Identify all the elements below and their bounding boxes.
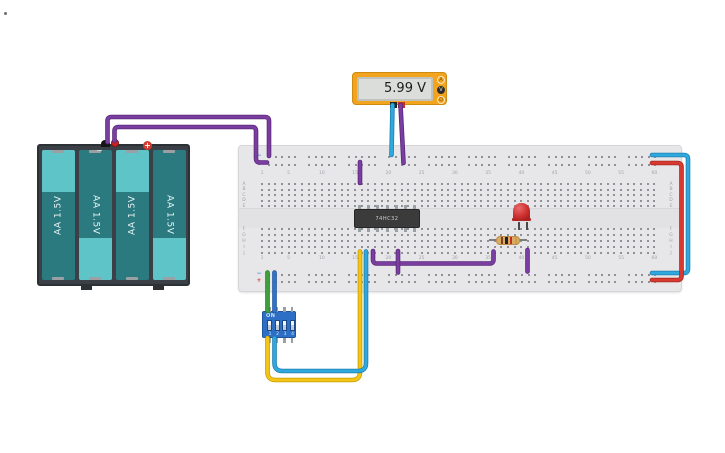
breadboard-hole [594,234,596,236]
breadboard-hole [367,252,369,254]
breadboard-hole [607,234,609,236]
breadboard-hole [600,194,602,196]
rail-hole [568,156,570,158]
breadboard-hole [367,246,369,248]
breadboard-hole [341,246,343,248]
dip-switch-slot[interactable] [275,320,280,331]
breadboard-hole [434,200,436,202]
dip-switch-slot[interactable] [290,320,295,331]
breadboard-hole [594,200,596,202]
rail-hole [601,274,603,276]
breadboard-hole [421,234,423,236]
breadboard-hole [567,189,569,191]
breadboard-hole [374,252,376,254]
breadboard-hole [540,189,542,191]
breadboard-hole [613,189,615,191]
breadboard-hole [401,240,403,242]
breadboard-hole [633,234,635,236]
rail-hole [534,281,536,283]
breadboard-hole [374,200,376,202]
dip-switch[interactable]: ON 1234 [262,311,296,338]
breadboard-hole [427,183,429,185]
breadboard-hole [314,240,316,242]
rail-hole [448,156,450,158]
rail-hole [494,156,496,158]
breadboard-hole [414,234,416,236]
breadboard-hole [381,246,383,248]
rail-hole [468,156,470,158]
ic-pin [404,205,407,209]
rail-hole [648,164,650,166]
breadboard-hole [294,194,296,196]
breadboard-hole [480,183,482,185]
breadboard-hole [620,252,622,254]
breadboard-hole [401,246,403,248]
breadboard-hole [587,189,589,191]
breadboard-hole [547,194,549,196]
rail-hole [328,156,330,158]
breadboard-hole [394,200,396,202]
rail-hole [475,281,477,283]
breadboard-hole [387,183,389,185]
breadboard-hole [394,183,396,185]
dip-switch-pin [268,338,271,343]
breadboard-hole [441,228,443,230]
breadboard-hole [534,183,536,185]
breadboard-hole [480,252,482,254]
battery-cell-label: AA 1.5V [116,150,149,280]
row-label: J [670,251,671,256]
breadboard-hole [554,228,556,230]
breadboard-hole [627,200,629,202]
breadboard-hole [427,246,429,248]
breadboard-hole [514,252,516,254]
rail-hole [268,274,270,276]
breadboard-hole [627,252,629,254]
row-label: G [669,233,673,238]
breadboard-hole [401,194,403,196]
rail-hole [654,156,656,158]
breadboard-hole [613,205,615,207]
breadboard-hole [294,246,296,248]
rail-hole [395,281,397,283]
breadboard-hole [627,240,629,242]
breadboard-hole [627,183,629,185]
rail-hole [374,164,376,166]
breadboard-hole [574,246,576,248]
rail-hole [488,281,490,283]
breadboard[interactable]: −+−+115510101515202025253030353540404545… [238,145,682,292]
led-red[interactable] [512,203,532,229]
rail-hole [515,281,517,283]
breadboard-hole [613,252,615,254]
rail-hole [355,274,357,276]
ic-pin [376,228,379,232]
breadboard-hole [447,228,449,230]
breadboard-hole [328,200,330,202]
breadboard-hole [613,228,615,230]
breadboard-hole [454,246,456,248]
battery-foot [81,285,92,290]
breadboard-hole [341,234,343,236]
breadboard-hole [587,234,589,236]
battery-positive-terminal[interactable] [111,139,119,147]
breadboard-hole [647,228,649,230]
dip-switch-pin [268,307,271,312]
breadboard-hole [407,189,409,191]
breadboard-hole [301,189,303,191]
mode-resistance-button[interactable]: Ω [437,96,445,104]
ic-chip-74hc32[interactable]: 74HC32 [354,209,420,228]
breadboard-hole [527,194,529,196]
breadboard-hole [480,189,482,191]
column-label: 5 [287,171,290,176]
breadboard-hole [294,240,296,242]
breadboard-hole [640,246,642,248]
breadboard-hole [627,234,629,236]
breadboard-hole [387,240,389,242]
breadboard-hole [474,194,476,196]
breadboard-hole [308,200,310,202]
row-label: C [669,193,672,198]
breadboard-hole [574,234,576,236]
breadboard-hole [301,234,303,236]
breadboard-hole [341,252,343,254]
breadboard-hole [620,200,622,202]
breadboard-hole [600,252,602,254]
breadboard-hole [560,228,562,230]
breadboard-hole [321,246,323,248]
rail-hole [435,274,437,276]
breadboard-hole [301,228,303,230]
column-label: 35 [485,256,491,261]
breadboard-hole [427,252,429,254]
breadboard-hole [514,194,516,196]
rail-hole [328,164,330,166]
dip-switch-slot[interactable] [282,320,287,331]
breadboard-hole [647,240,649,242]
battery-cell[interactable]: AA 1.5V [116,150,149,280]
breadboard-hole [534,234,536,236]
multimeter-positive-probe[interactable] [398,102,405,108]
resistor-body [496,236,520,245]
breadboard-hole [647,234,649,236]
breadboard-hole [328,205,330,207]
breadboard-hole [560,252,562,254]
multimeter-negative-probe[interactable] [390,102,397,108]
rail-hole [468,281,470,283]
breadboard-hole [560,200,562,202]
breadboard-hole [587,205,589,207]
breadboard-hole [554,183,556,185]
rail-hole [548,281,550,283]
breadboard-hole [487,228,489,230]
breadboard-hole [607,205,609,207]
breadboard-hole [574,252,576,254]
rail-hole [315,164,317,166]
breadboard-hole [334,189,336,191]
breadboard-hole [507,252,509,254]
rail-hole [288,274,290,276]
breadboard-hole [261,252,263,254]
breadboard-hole [647,200,649,202]
rail-hole [481,274,483,276]
breadboard-hole [421,183,423,185]
breadboard-hole [354,234,356,236]
column-label: 50 [585,256,591,261]
rail-hole [508,281,510,283]
breadboard-hole [620,228,622,230]
breadboard-hole [607,246,609,248]
breadboard-hole [354,228,356,230]
rail-hole [408,281,410,283]
resistor-band [505,237,508,244]
rail-hole [308,281,310,283]
breadboard-hole [467,200,469,202]
breadboard-hole [347,205,349,207]
breadboard-hole [587,228,589,230]
breadboard-hole [560,246,562,248]
breadboard-hole [567,246,569,248]
breadboard-hole [361,228,363,230]
battery-foot [153,285,164,290]
breadboard-hole [480,240,482,242]
resistor[interactable] [489,235,527,245]
battery-minus-icon: − [96,147,103,155]
breadboard-hole [361,200,363,202]
breadboard-hole [554,200,556,202]
rail-hole [528,274,530,276]
breadboard-hole [640,189,642,191]
dip-switch-slot[interactable] [267,320,272,331]
breadboard-hole [301,183,303,185]
rail-hole [475,156,477,158]
column-label: 25 [419,256,425,261]
breadboard-center-channel [239,208,681,228]
breadboard-hole [500,246,502,248]
breadboard-hole [288,234,290,236]
rail-hole [521,274,523,276]
breadboard-hole [454,228,456,230]
breadboard-hole [627,246,629,248]
breadboard-hole [547,205,549,207]
rail-hole [308,156,310,158]
breadboard-hole [261,234,263,236]
breadboard-hole [580,228,582,230]
rail-hole [408,164,410,166]
battery-cell[interactable]: AA 1.5V [42,150,75,280]
mode-voltage-button[interactable]: V [437,86,445,94]
breadboard-hole [381,240,383,242]
ic-pin [358,228,361,232]
breadboard-hole [587,246,589,248]
breadboard-hole [374,183,376,185]
rail-hole [614,156,616,158]
battery-pack[interactable]: AA 1.5V AA 1.5V AA 1.5V AA 1.5V + − [37,144,190,286]
breadboard-hole [261,246,263,248]
led-dome [513,203,530,220]
breadboard-hole [640,200,642,202]
breadboard-hole [294,234,296,236]
rail-hole [648,281,650,283]
breadboard-hole [434,194,436,196]
row-label: D [242,198,245,203]
column-label: 50 [585,171,591,176]
rail-hole [601,281,603,283]
breadboard-hole [607,228,609,230]
breadboard-hole [633,252,635,254]
breadboard-hole [461,246,463,248]
breadboard-hole [467,194,469,196]
breadboard-hole [574,205,576,207]
rail-hole [315,156,317,158]
breadboard-hole [314,183,316,185]
breadboard-hole [414,189,416,191]
breadboard-hole [547,183,549,185]
breadboard-hole [567,228,569,230]
breadboard-hole [268,252,270,254]
rail-hole [548,274,550,276]
breadboard-hole [594,228,596,230]
breadboard-hole [474,228,476,230]
rail-hole [395,274,397,276]
breadboard-hole [640,234,642,236]
breadboard-hole [447,183,449,185]
breadboard-hole [520,246,522,248]
rail-hole [595,274,597,276]
breadboard-hole [387,194,389,196]
multimeter[interactable]: 5.99 V A V Ω [352,72,447,105]
breadboard-hole [627,189,629,191]
breadboard-hole [620,234,622,236]
breadboard-hole [274,200,276,202]
breadboard-hole [321,252,323,254]
breadboard-hole [294,189,296,191]
rail-hole [475,164,477,166]
breadboard-hole [467,183,469,185]
rail-hole [628,156,630,158]
breadboard-hole [414,246,416,248]
breadboard-hole [414,240,416,242]
column-label: 20 [385,256,391,261]
rail-hole [561,156,563,158]
breadboard-hole [434,252,436,254]
breadboard-hole [308,183,310,185]
breadboard-hole [328,189,330,191]
row-label: F [243,227,246,232]
breadboard-hole [281,183,283,185]
battery-cell[interactable]: AA 1.5V [153,150,186,280]
breadboard-hole [554,252,556,254]
breadboard-hole [407,252,409,254]
breadboard-hole [361,183,363,185]
rail-hole [588,281,590,283]
breadboard-hole [367,183,369,185]
rail-hole [414,156,416,158]
breadboard-hole [447,234,449,236]
breadboard-hole [288,228,290,230]
breadboard-hole [461,228,463,230]
breadboard-hole [633,200,635,202]
led-anode-leg [518,222,520,230]
breadboard-hole [401,183,403,185]
breadboard-hole [554,240,556,242]
rail-hole [368,156,370,158]
rail-hole [401,164,403,166]
breadboard-hole [554,234,556,236]
breadboard-hole [328,194,330,196]
breadboard-hole [441,194,443,196]
breadboard-hole [421,252,423,254]
breadboard-hole [600,246,602,248]
breadboard-hole [467,246,469,248]
breadboard-hole [587,252,589,254]
breadboard-hole [647,183,649,185]
breadboard-hole [474,205,476,207]
breadboard-hole [314,234,316,236]
column-label: 1 [261,256,264,261]
mode-amperage-button[interactable]: A [437,76,445,84]
breadboard-hole [394,252,396,254]
breadboard-hole [281,234,283,236]
rail-hole [454,274,456,276]
rail-hole [614,281,616,283]
breadboard-hole [547,246,549,248]
breadboard-hole [494,183,496,185]
rail-hole [268,164,270,166]
breadboard-hole [474,183,476,185]
breadboard-hole [394,246,396,248]
breadboard-hole [467,252,469,254]
rail-hole [334,274,336,276]
breadboard-hole [447,189,449,191]
breadboard-hole [367,200,369,202]
breadboard-hole [647,194,649,196]
breadboard-hole [520,194,522,196]
breadboard-hole [281,240,283,242]
breadboard-hole [354,189,356,191]
breadboard-hole [454,240,456,242]
breadboard-hole [574,183,576,185]
rail-hole [308,164,310,166]
breadboard-hole [328,246,330,248]
breadboard-hole [474,240,476,242]
breadboard-hole [454,234,456,236]
breadboard-hole [308,246,310,248]
rail-hole [275,274,277,276]
breadboard-hole [288,205,290,207]
ic-pin [386,228,389,232]
breadboard-hole [527,240,529,242]
battery-cell[interactable]: AA 1.5V [79,150,112,280]
breadboard-hole [294,228,296,230]
rail-hole [475,274,477,276]
breadboard-hole [314,194,316,196]
breadboard-hole [474,189,476,191]
rail-hole [648,274,650,276]
column-label: 10 [319,256,325,261]
breadboard-hole [633,228,635,230]
rail-hole [294,274,296,276]
column-label: 30 [452,171,458,176]
rail-hole [481,164,483,166]
breadboard-hole [587,194,589,196]
breadboard-hole [381,194,383,196]
breadboard-hole [434,240,436,242]
rail-hole [414,274,416,276]
breadboard-hole [294,200,296,202]
breadboard-hole [613,194,615,196]
